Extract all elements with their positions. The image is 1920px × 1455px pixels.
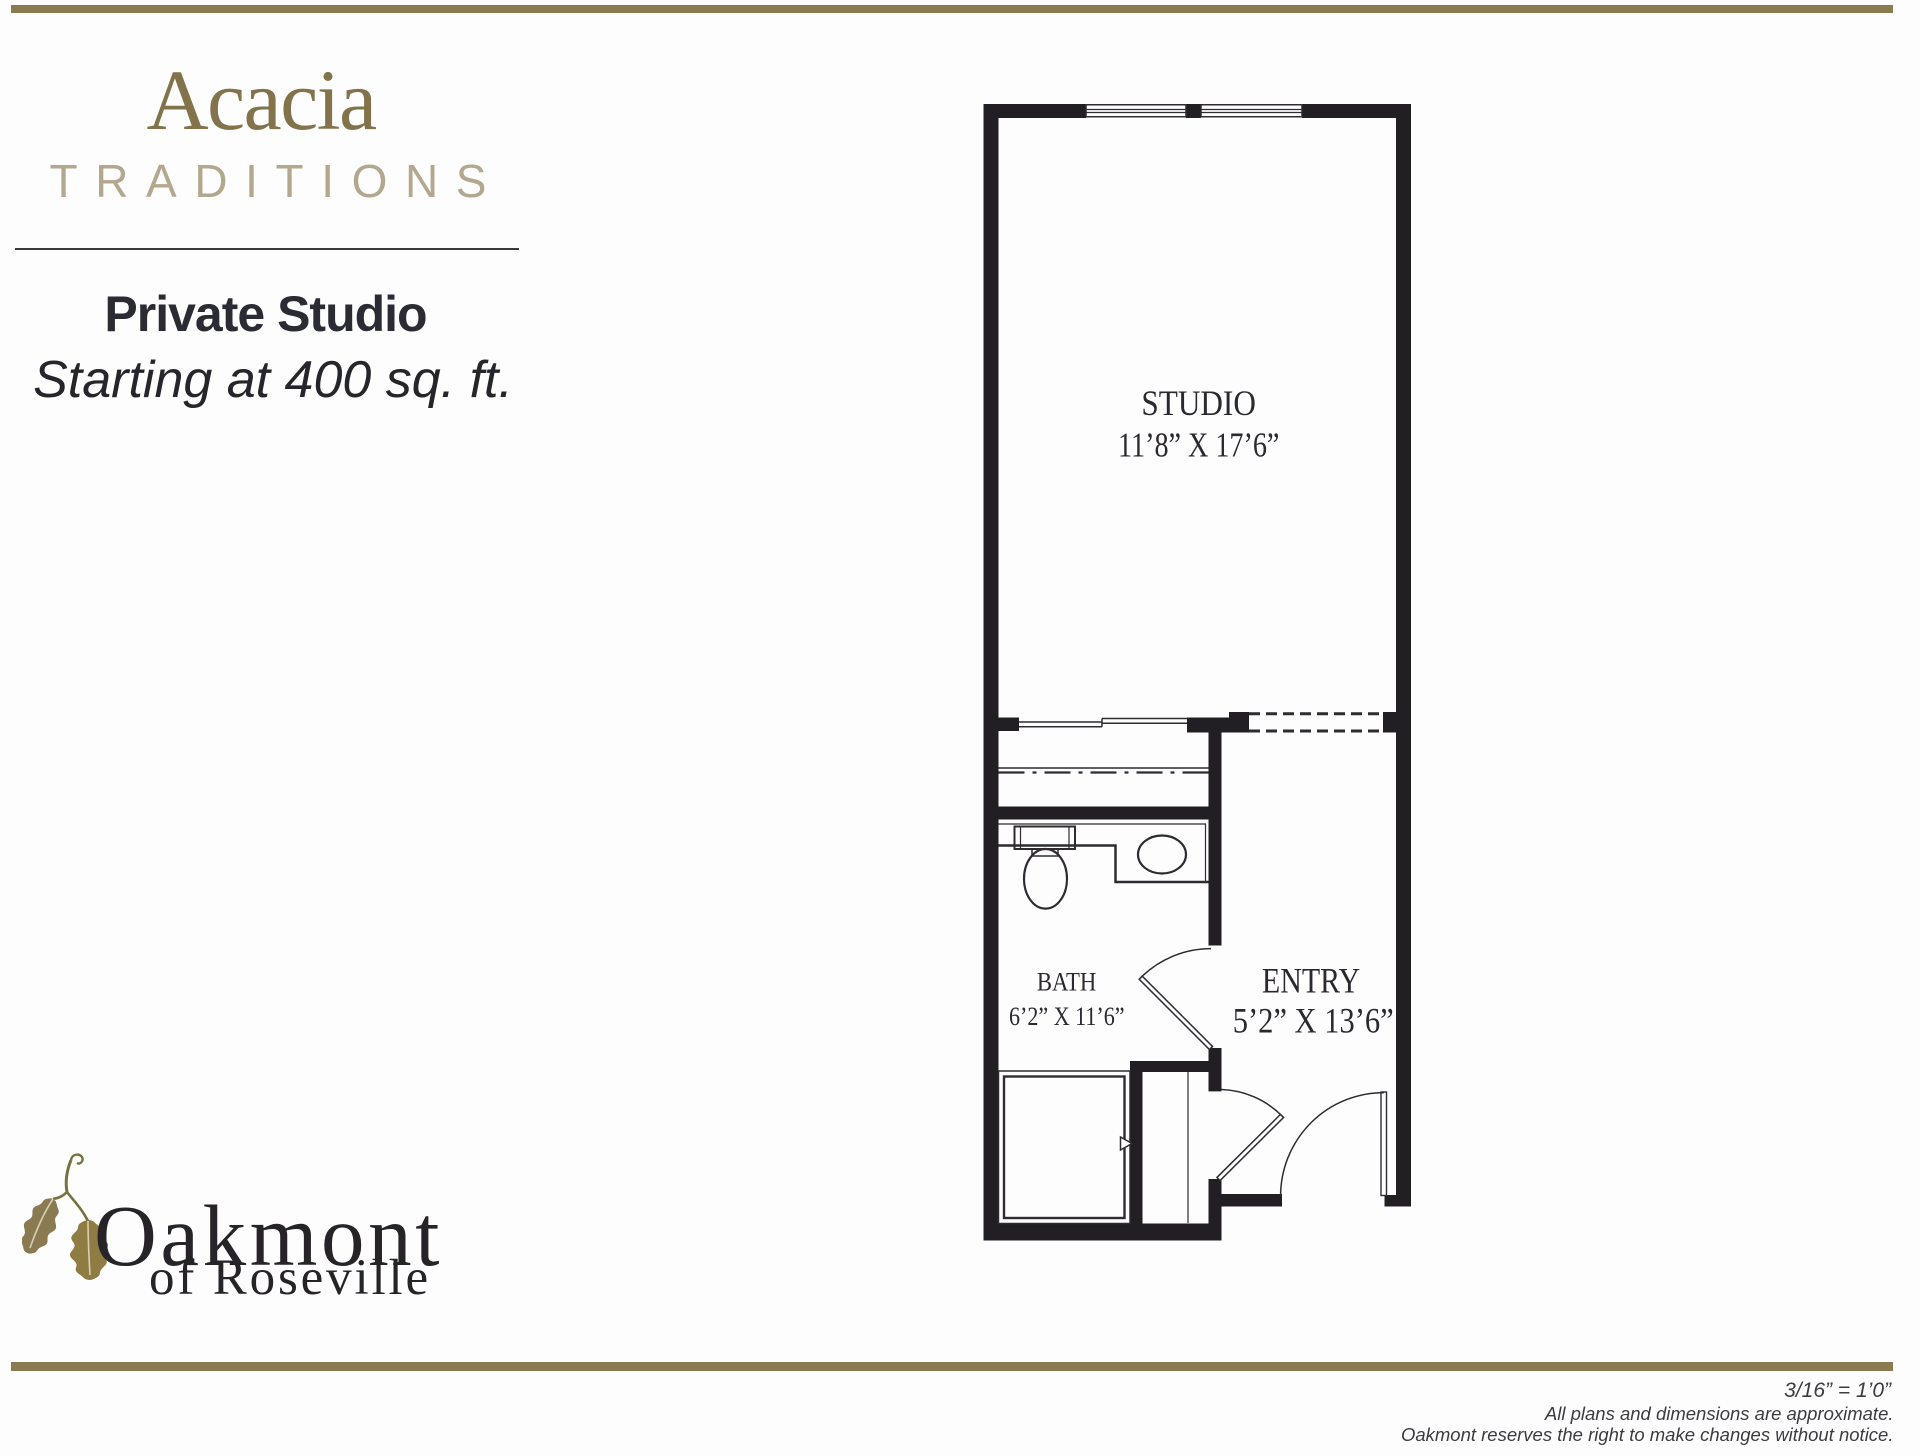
svg-text:5’2” X 13’6”: 5’2” X 13’6” <box>1233 1000 1394 1040</box>
svg-text:6’2” X 11’6”: 6’2” X 11’6” <box>1009 1002 1125 1031</box>
svg-text:STUDIO: STUDIO <box>1141 383 1256 423</box>
svg-text:ENTRY: ENTRY <box>1262 961 1360 1001</box>
svg-text:11’8” X 17’6”: 11’8” X 17’6” <box>1118 426 1279 465</box>
svg-text:BATH: BATH <box>1037 967 1097 996</box>
